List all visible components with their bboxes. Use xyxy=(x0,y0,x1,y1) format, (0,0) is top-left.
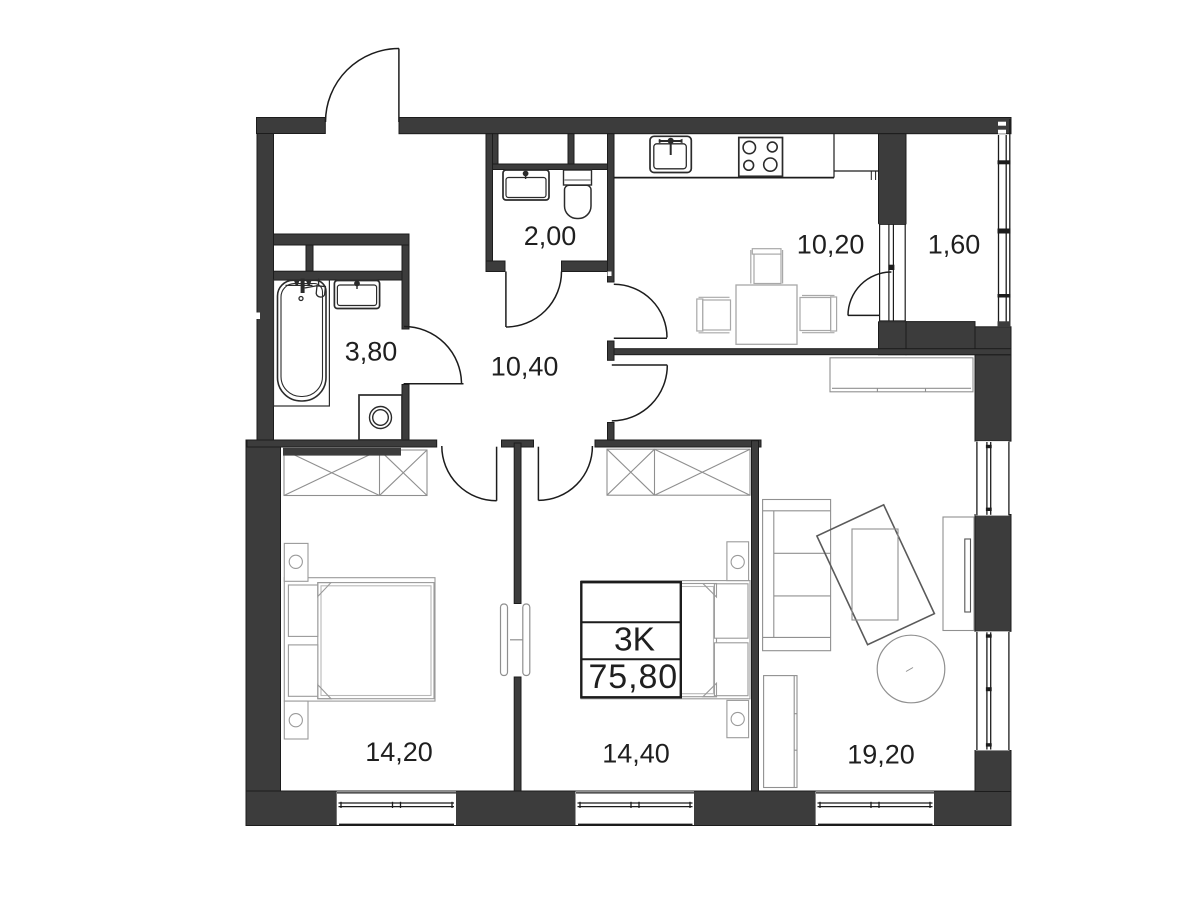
svg-text:1,60: 1,60 xyxy=(928,230,981,260)
svg-text:3K: 3K xyxy=(614,622,655,659)
svg-text:14,20: 14,20 xyxy=(365,737,433,767)
svg-text:75,80: 75,80 xyxy=(589,658,679,696)
svg-text:10,40: 10,40 xyxy=(491,352,559,382)
svg-text:3,80: 3,80 xyxy=(345,337,398,367)
svg-text:19,20: 19,20 xyxy=(847,740,915,770)
svg-text:2,00: 2,00 xyxy=(524,221,577,251)
svg-text:10,20: 10,20 xyxy=(797,230,865,260)
svg-text:14,40: 14,40 xyxy=(602,739,670,769)
